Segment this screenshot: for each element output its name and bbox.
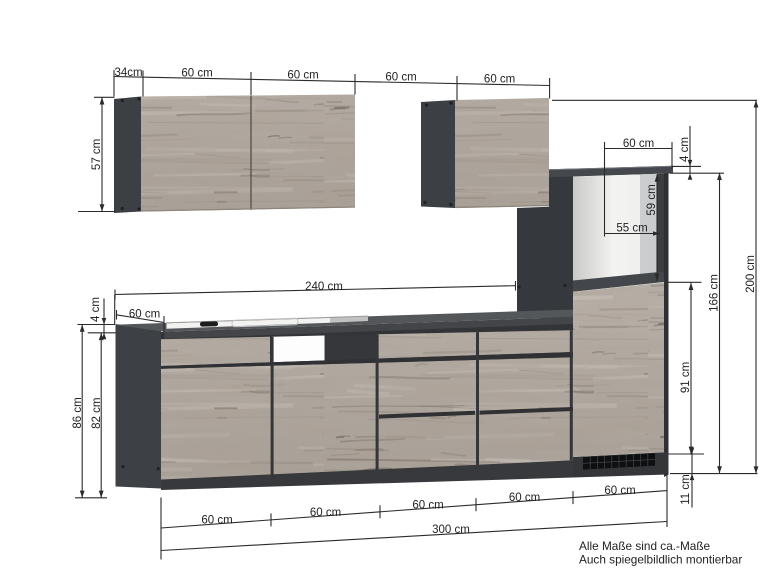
svg-text:60 cm: 60 cm bbox=[412, 499, 443, 511]
svg-text:60 cm: 60 cm bbox=[623, 138, 654, 150]
svg-text:300 cm: 300 cm bbox=[432, 524, 470, 536]
svg-text:60 cm: 60 cm bbox=[484, 74, 515, 86]
svg-text:59 cm: 59 cm bbox=[646, 184, 658, 215]
svg-text:86 cm: 86 cm bbox=[72, 397, 84, 428]
svg-text:34cm: 34cm bbox=[114, 67, 142, 79]
svg-text:60 cm: 60 cm bbox=[385, 72, 416, 84]
svg-text:240 cm: 240 cm bbox=[305, 281, 343, 293]
svg-text:60 cm: 60 cm bbox=[509, 492, 540, 504]
svg-text:82 cm: 82 cm bbox=[91, 398, 103, 429]
svg-text:60 cm: 60 cm bbox=[310, 507, 341, 519]
svg-text:4 cm: 4 cm bbox=[90, 297, 102, 322]
svg-text:55 cm: 55 cm bbox=[616, 223, 647, 235]
svg-text:91 cm: 91 cm bbox=[680, 362, 692, 393]
svg-text:60 cm: 60 cm bbox=[604, 485, 635, 497]
svg-text:60 cm: 60 cm bbox=[181, 68, 212, 80]
svg-text:11 cm: 11 cm bbox=[680, 474, 692, 504]
svg-text:Auch spiegelbildlich montierba: Auch spiegelbildlich montierbar bbox=[579, 553, 742, 567]
svg-text:57 cm: 57 cm bbox=[91, 139, 103, 170]
svg-text:60 cm: 60 cm bbox=[287, 70, 318, 82]
svg-text:200 cm: 200 cm bbox=[745, 255, 757, 293]
svg-text:Alle Maße sind ca.-Maße: Alle Maße sind ca.-Maße bbox=[579, 539, 711, 553]
svg-text:60 cm: 60 cm bbox=[129, 309, 160, 321]
svg-text:60 cm: 60 cm bbox=[201, 515, 232, 527]
svg-text:166 cm: 166 cm bbox=[709, 274, 721, 312]
svg-text:4 cm: 4 cm bbox=[679, 137, 691, 162]
